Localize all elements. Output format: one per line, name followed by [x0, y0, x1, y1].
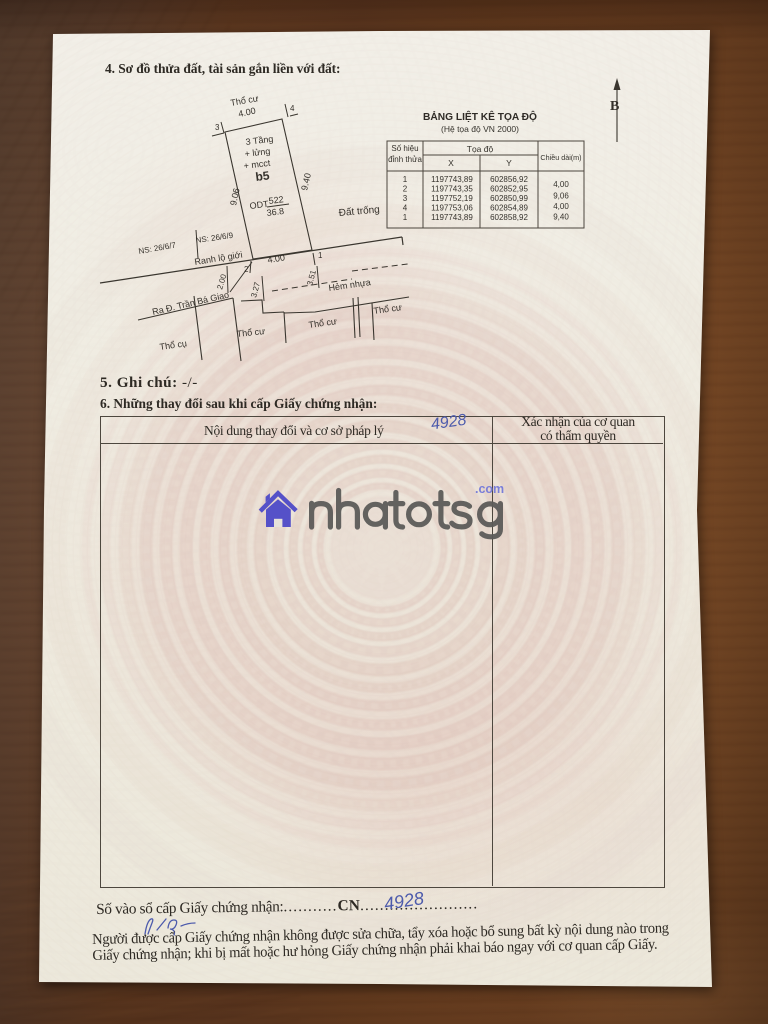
- svg-text:+ lửng: + lửng: [244, 146, 271, 159]
- svg-text:Y: Y: [506, 158, 512, 168]
- svg-text:Thổ cụ: Thổ cụ: [159, 338, 188, 352]
- svg-text:3.27: 3.27: [249, 281, 262, 299]
- svg-text:36.8: 36.8: [266, 206, 285, 218]
- svg-text:Chiều dài(m): Chiều dài(m): [540, 153, 581, 162]
- svg-text:1197753,06: 1197753,06: [431, 204, 473, 213]
- svg-text:3.51: 3.51: [305, 269, 318, 287]
- svg-text:3: 3: [215, 123, 220, 132]
- svg-text:602856,92: 602856,92: [490, 175, 528, 184]
- svg-text:3: 3: [403, 194, 408, 203]
- svg-text:Thổ cư: Thổ cư: [230, 93, 260, 108]
- svg-text:NS: 26/6/9: NS: 26/6/9: [195, 231, 234, 245]
- svg-text:1197743,89: 1197743,89: [431, 175, 473, 184]
- svg-text:Tọa độ: Tọa độ: [467, 144, 494, 154]
- svg-text:602854,89: 602854,89: [490, 204, 528, 213]
- svg-text:4,00: 4,00: [553, 180, 569, 189]
- svg-text:1197743,89: 1197743,89: [431, 213, 473, 222]
- svg-text:Ra Đ. Trần Bá Giao: Ra Đ. Trần Bá Giao: [151, 290, 230, 317]
- svg-text:9.40: 9.40: [299, 172, 313, 191]
- svg-text:2: 2: [403, 185, 408, 194]
- svg-text:đỉnh thửa: đỉnh thửa: [388, 155, 422, 164]
- svg-text:X: X: [448, 158, 454, 168]
- svg-text:4.00: 4.00: [237, 106, 256, 119]
- svg-text:602850,99: 602850,99: [490, 194, 528, 203]
- svg-text:Thổ cư: Thổ cư: [236, 326, 265, 339]
- svg-text:602852,95: 602852,95: [490, 185, 528, 194]
- svg-text:4: 4: [290, 104, 295, 113]
- svg-text:Đất trống: Đất trống: [338, 203, 380, 219]
- svg-text:1197752,19: 1197752,19: [431, 194, 473, 203]
- svg-text:Thổ cư: Thổ cư: [308, 316, 338, 330]
- svg-text:1: 1: [318, 251, 323, 260]
- svg-text:4: 4: [403, 204, 408, 213]
- svg-text:522: 522: [268, 194, 284, 206]
- svg-text:B: B: [610, 99, 619, 114]
- svg-text:Số hiệu: Số hiệu: [391, 144, 418, 153]
- svg-text:1197743,35: 1197743,35: [431, 185, 473, 194]
- svg-text:3 Tầng: 3 Tầng: [245, 134, 274, 147]
- svg-text:9,40: 9,40: [553, 213, 569, 222]
- svg-text:9,06: 9,06: [553, 192, 569, 201]
- svg-text:BẢNG LIỆT KÊ TỌA ĐỘ: BẢNG LIỆT KÊ TỌA ĐỘ: [423, 110, 537, 123]
- svg-text:Hẻm nhựa: Hẻm nhựa: [328, 277, 372, 293]
- svg-text:4,00: 4,00: [553, 202, 569, 211]
- svg-text:602858,92: 602858,92: [490, 213, 528, 222]
- svg-text:1: 1: [403, 175, 408, 184]
- svg-text:2.00: 2.00: [215, 273, 228, 291]
- svg-text:b5: b5: [255, 168, 271, 184]
- svg-text:4.00: 4.00: [267, 252, 286, 265]
- svg-text:Thổ cư: Thổ cư: [373, 302, 403, 316]
- svg-text:NS: 26/6/7: NS: 26/6/7: [138, 240, 177, 256]
- svg-text:1: 1: [403, 213, 408, 222]
- svg-text:(Hệ tọa độ VN 2000): (Hệ tọa độ VN 2000): [441, 124, 519, 134]
- svg-text:9.06: 9.06: [228, 187, 241, 206]
- svg-text:.com: .com: [475, 482, 504, 496]
- svg-text:2: 2: [244, 265, 249, 274]
